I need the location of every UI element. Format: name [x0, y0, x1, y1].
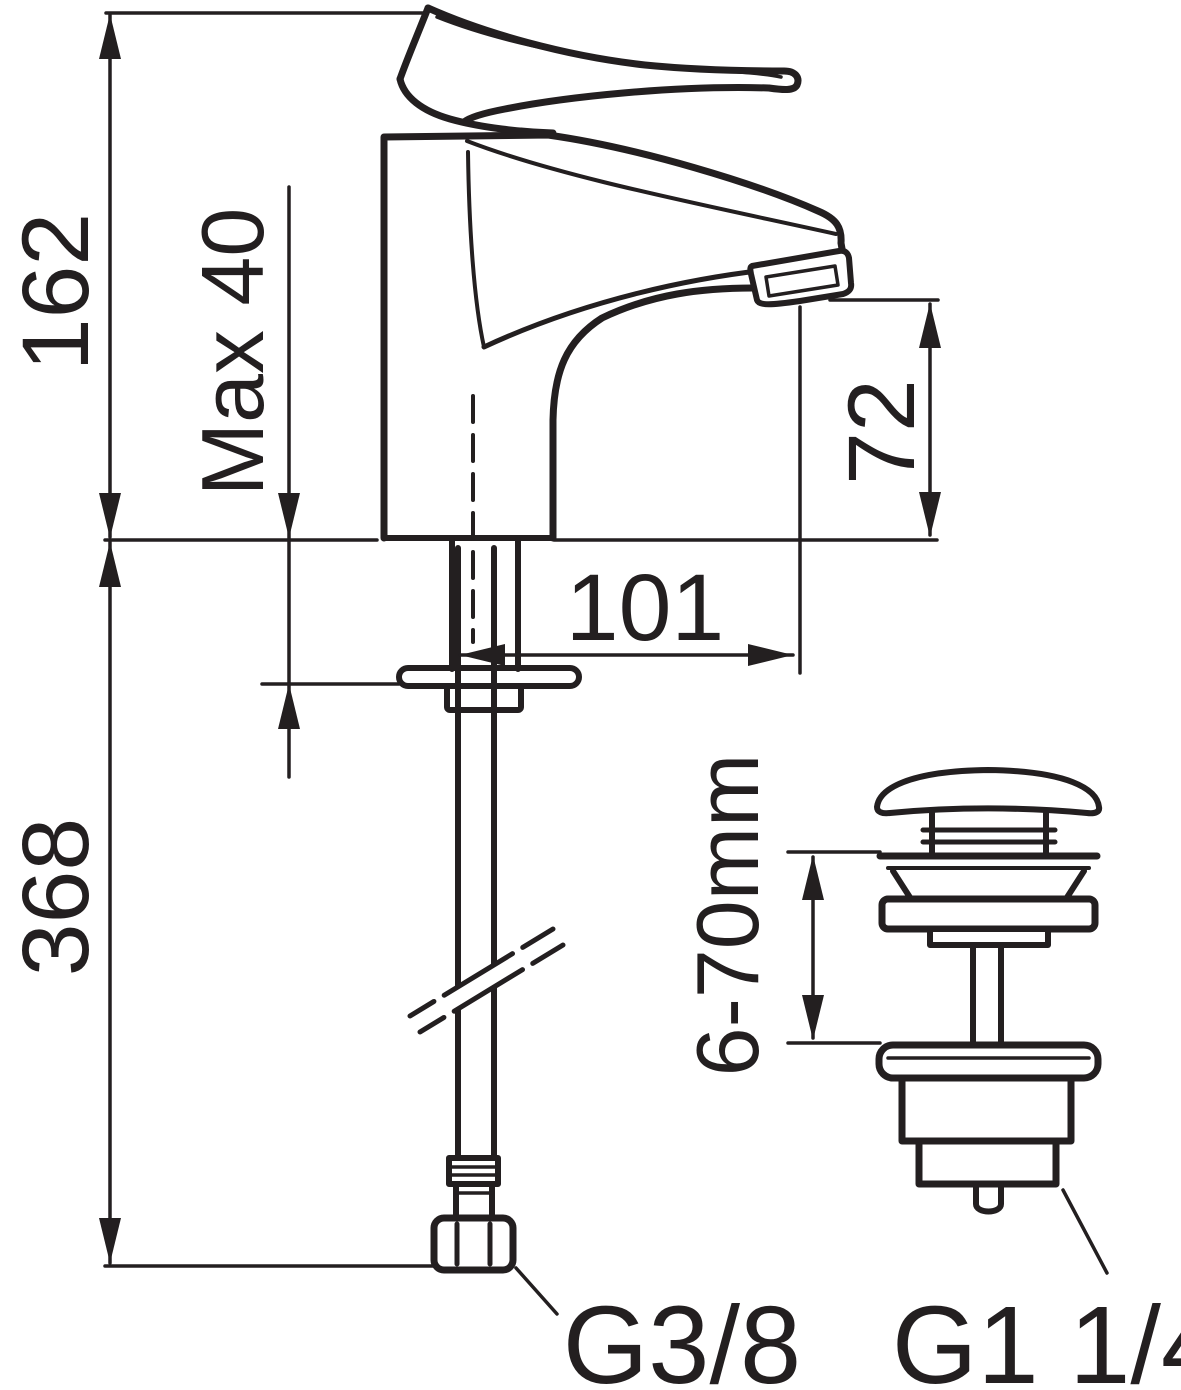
waste-pin — [976, 1184, 1001, 1212]
faucet-spout-underside — [553, 288, 753, 538]
faucet-handle-front-edge — [400, 8, 428, 79]
waste-step — [930, 929, 1048, 945]
supply-nut — [434, 1218, 513, 1270]
dim-waste-clamp-label: 6-70mm — [678, 754, 777, 1077]
waste-body-lower — [919, 1141, 1056, 1184]
dim-max-deck-label: Max 40 — [183, 208, 282, 497]
dim-spout-reach-label: 101 — [566, 555, 725, 661]
technical-drawing-sheet: 162 Max 40 368 101 72 6-70mm — [0, 0, 1181, 1390]
waste-neck — [932, 813, 1046, 855]
waste-neck-ribs — [923, 830, 1055, 842]
dim-max-deck-thickness: Max 40 — [183, 187, 399, 777]
callout-supply-thread: G3/8 — [516, 1268, 801, 1390]
supply-thread-leader — [516, 1268, 557, 1314]
faucet-body-outline — [384, 135, 844, 538]
supply-thread-label: G3/8 — [563, 1284, 801, 1390]
faucet-dimension-drawing: 162 Max 40 368 101 72 6-70mm — [0, 0, 1181, 1390]
waste-body — [902, 1078, 1071, 1141]
waste-clamp-flange — [879, 1045, 1098, 1078]
callout-waste-thread: G1 1/4 — [892, 1190, 1181, 1390]
dim-total-height-label: 162 — [3, 213, 109, 372]
dim-waste-clamp-range: 6-70mm — [678, 754, 880, 1077]
dim-below-deck-label: 368 — [3, 818, 109, 977]
waste-cap — [877, 770, 1099, 813]
dim-spout-height: 72 — [829, 300, 941, 537]
waste-seat-cone — [893, 871, 1084, 899]
faucet-handle-outline — [428, 8, 798, 122]
waste-washer-plate — [882, 899, 1095, 929]
supply-hose — [458, 548, 494, 1160]
dim-spout-height-label: 72 — [829, 379, 935, 485]
hose-break-line-upper — [410, 929, 553, 1016]
waste-thread-leader — [1063, 1190, 1107, 1273]
hose-crimp-sleeve — [449, 1158, 498, 1184]
waste-thread-label: G1 1/4 — [892, 1284, 1181, 1390]
dim-spout-reach: 101 — [460, 307, 800, 673]
dim-below-deck-length: 368 — [3, 542, 436, 1266]
waste-stem — [973, 945, 1001, 1045]
pop-up-waste-view — [877, 770, 1099, 1212]
faucet-body-seam-front — [468, 152, 484, 347]
hose-break-mask — [410, 929, 563, 1032]
